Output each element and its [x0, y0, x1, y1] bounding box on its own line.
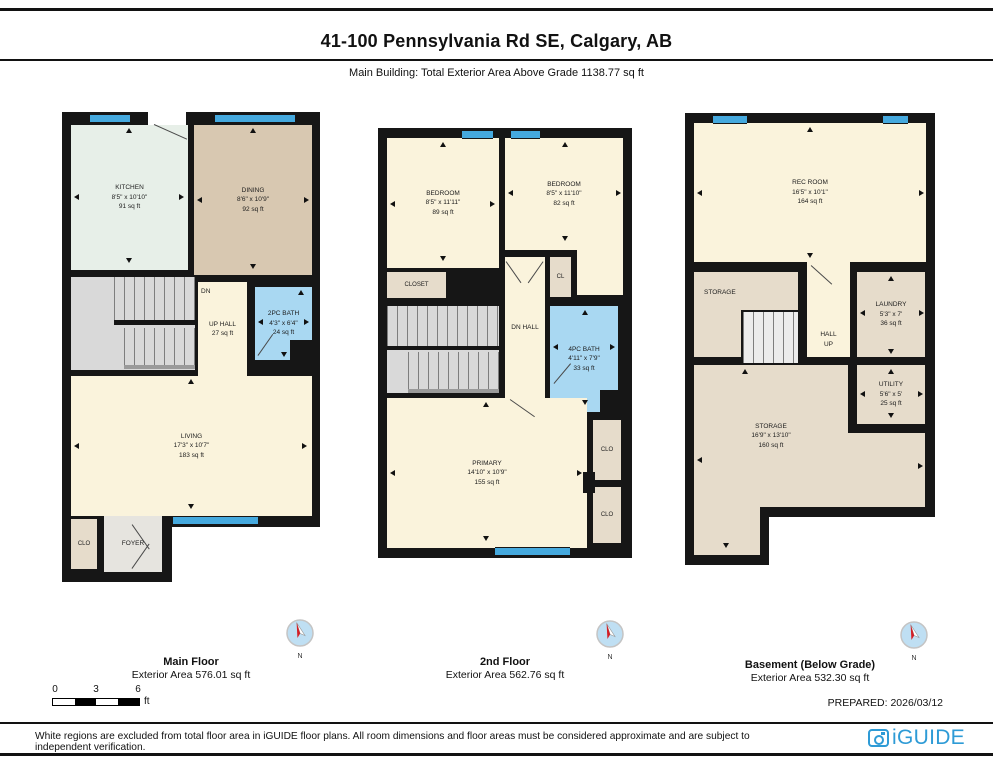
- dimension-arrow: [918, 463, 923, 469]
- walls: [583, 472, 595, 493]
- dimension-arrow: [919, 190, 924, 196]
- dimension-arrow: [888, 413, 894, 418]
- room-area: 24 sq ft: [273, 328, 294, 337]
- window: [713, 115, 747, 124]
- dimension-arrow: [483, 402, 489, 407]
- room-kitchen: KITCHEN 8'5" x 10'10" 91 sq ft: [71, 125, 188, 270]
- scale-tick: 6: [135, 684, 141, 695]
- dimension-arrow: [258, 319, 263, 325]
- dimension-arrow: [919, 310, 924, 316]
- walls: [600, 390, 618, 412]
- stair-divider: [114, 320, 195, 325]
- stair-treads: [743, 312, 798, 363]
- room-closet: CLOSET: [387, 272, 446, 298]
- room-area: 164 sq ft: [798, 197, 823, 206]
- compass: N: [284, 618, 316, 660]
- main-floor-plan: KITCHEN 8'5" x 10'10" 91 sq ft DINING 8'…: [62, 112, 320, 585]
- walls: [290, 340, 312, 360]
- room-label: HALL: [820, 330, 836, 339]
- dimension-arrow: [577, 470, 582, 476]
- floor-plan-page: 41-100 Pennsylvania Rd SE, Calgary, AB M…: [0, 0, 993, 768]
- room-primary: PRIMARY 14'10" x 10'9" 155 sq ft: [387, 398, 587, 548]
- dimension-arrow: [126, 128, 132, 133]
- room-hall: DN UP HALL 27 sq ft: [198, 282, 247, 376]
- room-label: UTILITY: [879, 380, 903, 389]
- dimension-arrow: [888, 349, 894, 354]
- window: [511, 130, 540, 139]
- dimension-arrow: [298, 290, 304, 295]
- dimension-arrow: [281, 352, 287, 357]
- dimension-arrow: [697, 457, 702, 463]
- scale-tick: 3: [93, 684, 99, 695]
- room-label: STORAGE: [755, 422, 787, 431]
- room-area: 91 sq ft: [119, 202, 140, 211]
- room-label: LIVING: [181, 432, 202, 441]
- room-area: 27 sq ft: [212, 329, 233, 338]
- scale-segment: [75, 699, 97, 705]
- disclaimer-text: White regions are excluded from total fl…: [35, 731, 775, 753]
- floor-name: 2nd Floor: [378, 656, 632, 668]
- dimension-arrow: [74, 443, 79, 449]
- room-label: CLO: [78, 540, 90, 549]
- room-area: 89 sq ft: [432, 208, 453, 217]
- dimension-arrow: [188, 379, 194, 384]
- room-label: BEDROOM: [547, 180, 581, 189]
- room-label: CLO: [601, 446, 613, 455]
- window: [90, 114, 130, 123]
- room-laundry: LAUNDRY 5'3" x 7' 36 sq ft: [857, 272, 925, 357]
- floor-name: Basement (Below Grade): [685, 659, 935, 671]
- dimension-arrow: [126, 258, 132, 263]
- dimension-arrow: [508, 190, 513, 196]
- stairs: [71, 277, 195, 370]
- scale-tick: 0: [52, 684, 58, 695]
- stair-treads: [124, 328, 195, 365]
- dimension-arrow: [304, 319, 309, 325]
- stair-ledge: [408, 389, 499, 393]
- compass-icon: [284, 618, 316, 650]
- dimension-arrow: [562, 142, 568, 147]
- window: [173, 516, 258, 525]
- stairs-dn-label: DN: [511, 324, 520, 331]
- dimension-arrow: [490, 201, 495, 207]
- iguide-camera-icon: [868, 729, 889, 747]
- dimension-arrow: [582, 310, 588, 315]
- room-dims: 16'9" x 13'10": [751, 431, 790, 440]
- second-floor-plan: BEDROOM 8'5" x 11'11" 89 sq ft BEDROOM 8…: [378, 128, 632, 558]
- dimension-arrow: [860, 310, 865, 316]
- stair-treads: [408, 352, 499, 389]
- room-dims: 8'6" x 10'9": [237, 195, 269, 204]
- room-living: LIVING 17'3" x 10'7" 183 sq ft: [71, 376, 312, 516]
- window: [495, 547, 570, 556]
- dimension-arrow: [582, 400, 588, 405]
- room-dims: 14'10" x 10'9": [467, 468, 506, 477]
- dimension-arrow: [610, 344, 615, 350]
- dimension-arrow: [179, 194, 184, 200]
- stairs-dn-label: DN: [201, 287, 210, 296]
- room-area: 36 sq ft: [880, 319, 901, 328]
- iguide-logo: iGUIDE: [868, 726, 965, 750]
- room-area: 160 sq ft: [759, 441, 784, 450]
- room-rec-room: REC ROOM 16'5" x 10'1" 164 sq ft: [694, 123, 926, 262]
- stair-treads: [387, 306, 499, 346]
- floor-area: Exterior Area 562.76 sq ft: [378, 669, 632, 681]
- compass-icon: [898, 620, 930, 652]
- room-label: DN HALL: [511, 323, 538, 332]
- basement-plan: REC ROOM 16'5" x 10'1" 164 sq ft STORAGE…: [685, 113, 935, 565]
- scale-unit: ft: [144, 696, 150, 707]
- dimension-arrow: [483, 536, 489, 541]
- room-area: 25 sq ft: [880, 399, 901, 408]
- dimension-arrow: [860, 391, 865, 397]
- room-area: 155 sq ft: [475, 478, 500, 487]
- scale-segment: [53, 699, 75, 705]
- room-closet: CLO: [71, 519, 97, 569]
- room-dims: 17'3" x 10'7": [174, 441, 210, 450]
- room-dims: 5'3" x 7': [880, 310, 903, 319]
- dimension-arrow: [250, 128, 256, 133]
- room-bedroom-2-area: [577, 250, 623, 295]
- floor-name: Main Floor: [62, 656, 320, 668]
- room-bedroom-1: BEDROOM 8'5" x 11'11" 89 sq ft: [387, 138, 499, 268]
- dimension-arrow: [807, 253, 813, 258]
- dimension-arrow: [390, 470, 395, 476]
- room-label: HALL: [522, 324, 538, 331]
- iguide-logo-text: iGUIDE: [892, 726, 965, 750]
- room-area: 183 sq ft: [179, 451, 204, 460]
- dimension-arrow: [553, 344, 558, 350]
- compass-icon: [594, 619, 626, 651]
- dimension-arrow: [807, 127, 813, 132]
- stairs-up-label: UP: [209, 321, 218, 328]
- room-label: DINING: [242, 186, 265, 195]
- dimension-arrow: [918, 391, 923, 397]
- dimension-arrow: [723, 543, 729, 548]
- dimension-arrow: [250, 264, 256, 269]
- room-clo-lower: CLO: [593, 487, 621, 543]
- dimension-arrow: [390, 201, 395, 207]
- dimension-arrow: [74, 194, 79, 200]
- room-dims: 5'6" x 5': [880, 390, 903, 399]
- dimension-arrow: [562, 236, 568, 241]
- dimension-arrow: [304, 197, 309, 203]
- scale-segment: [118, 699, 140, 705]
- room-dims: 4'11" x 7'9": [568, 354, 600, 363]
- window: [215, 114, 295, 123]
- dimension-arrow: [188, 504, 194, 509]
- window: [883, 115, 908, 124]
- floor-label-main: Main Floor Exterior Area 576.01 sq ft: [62, 656, 320, 681]
- divider-rule: [0, 722, 993, 724]
- room-dims: 8'5" x 11'10": [546, 189, 581, 198]
- compass: N: [898, 620, 930, 662]
- room-label: BEDROOM: [426, 189, 460, 198]
- room-label: FOYER: [122, 539, 144, 548]
- room-label: KITCHEN: [115, 183, 144, 192]
- dimension-arrow: [888, 369, 894, 374]
- dimension-arrow: [440, 256, 446, 261]
- room-dims: 4'3" x 6'4": [269, 319, 297, 328]
- scale-bar: 0 3 6 ft: [52, 684, 172, 710]
- divider-rule: [0, 8, 993, 11]
- scale-bar-segments: [52, 698, 140, 706]
- room-dims: 8'5" x 10'10": [112, 193, 148, 202]
- divider-rule: [0, 59, 993, 61]
- room-dims: 16'5" x 10'1": [792, 188, 828, 197]
- camera-notch: [881, 732, 885, 735]
- stairs: [387, 306, 499, 393]
- floor-label-second: 2nd Floor Exterior Area 562.76 sq ft: [378, 656, 632, 681]
- room-dining: DINING 8'6" x 10'9" 92 sq ft: [194, 125, 312, 275]
- floor-label-basement: Basement (Below Grade) Exterior Area 532…: [685, 659, 935, 684]
- room-hall: HALL UP: [807, 262, 850, 357]
- prepared-date: PREPARED: 2026/03/12: [828, 697, 943, 709]
- room-label: HALL: [220, 321, 236, 328]
- room-label: UP HALL: [209, 320, 236, 329]
- stair-treads: [114, 277, 195, 320]
- dimension-arrow: [697, 190, 702, 196]
- room-label: STORAGE: [704, 288, 736, 297]
- room-area: 33 sq ft: [573, 364, 594, 373]
- stairs: [741, 310, 800, 365]
- room-clo-upper: CLO: [593, 420, 621, 480]
- floor-area: Exterior Area 532.30 sq ft: [685, 672, 935, 684]
- room-label: 2PC BATH: [268, 309, 299, 318]
- room-bedroom-2: BEDROOM 8'5" x 11'10" 82 sq ft: [505, 138, 623, 250]
- stair-divider: [387, 346, 499, 350]
- window: [462, 130, 493, 139]
- room-label: CL: [557, 273, 565, 282]
- divider-rule: [0, 753, 993, 756]
- room-storage-main-area: [848, 433, 925, 507]
- stairs-up-label: UP: [824, 340, 833, 349]
- stair-ledge: [124, 365, 195, 369]
- floor-area: Exterior Area 576.01 sq ft: [62, 669, 320, 681]
- room-label: CLO: [601, 511, 613, 520]
- page-title: 41-100 Pennsylvania Rd SE, Calgary, AB: [0, 31, 993, 52]
- scale-segment: [96, 699, 118, 705]
- room-area: 82 sq ft: [553, 199, 574, 208]
- room-label: LAUNDRY: [876, 300, 907, 309]
- dimension-arrow: [742, 369, 748, 374]
- dimension-arrow: [616, 190, 621, 196]
- room-area: 92 sq ft: [242, 205, 263, 214]
- page-subtitle: Main Building: Total Exterior Area Above…: [0, 67, 993, 79]
- room-hall: DN HALL: [505, 257, 545, 398]
- dimension-arrow: [440, 142, 446, 147]
- dimension-arrow: [302, 443, 307, 449]
- room-cl: CL: [550, 257, 571, 297]
- dimension-arrow: [888, 276, 894, 281]
- room-dims: 8'5" x 11'11": [426, 198, 461, 207]
- dimension-arrow: [197, 197, 202, 203]
- camera-lens: [874, 735, 884, 745]
- room-label: CLOSET: [404, 281, 428, 290]
- room-label: 4PC BATH: [568, 345, 599, 354]
- room-label: PRIMARY: [472, 459, 502, 468]
- compass: N: [594, 619, 626, 661]
- room-label: REC ROOM: [792, 178, 828, 187]
- room-storage-main: STORAGE 16'9" x 13'10" 160 sq ft: [694, 365, 848, 507]
